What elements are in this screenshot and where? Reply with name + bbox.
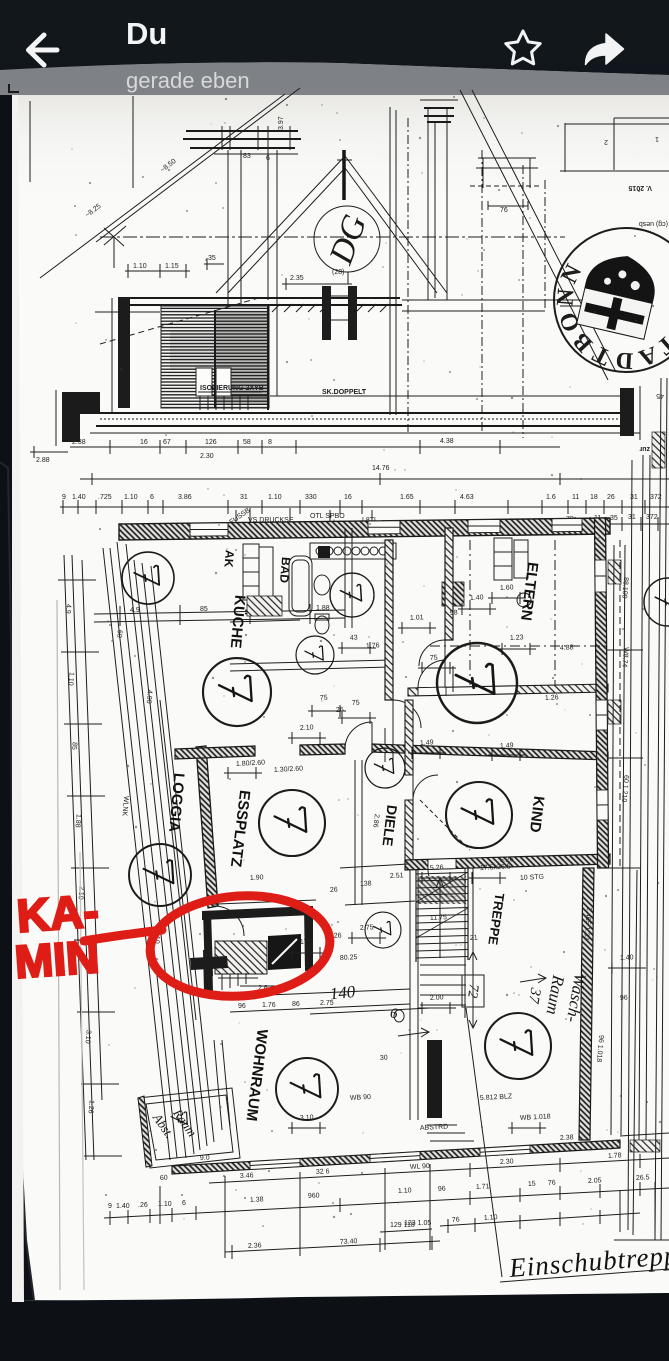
svg-text:2.88: 2.88 xyxy=(36,457,50,464)
svg-text:80.25: 80.25 xyxy=(340,954,358,962)
svg-text:43: 43 xyxy=(350,635,358,642)
svg-text:18: 18 xyxy=(590,494,598,501)
svg-text:96: 96 xyxy=(438,1186,446,1193)
svg-text:1.78: 1.78 xyxy=(608,1152,622,1160)
svg-text:1.71: 1.71 xyxy=(476,1183,490,1191)
svg-text:9: 9 xyxy=(108,1203,112,1210)
svg-text:4.63: 4.63 xyxy=(460,494,474,501)
svg-text:45: 45 xyxy=(656,392,664,399)
svg-text:31: 31 xyxy=(240,494,248,501)
svg-text:76: 76 xyxy=(548,1180,556,1187)
svg-text:2.30: 2.30 xyxy=(500,1158,514,1166)
svg-text:1.10: 1.10 xyxy=(67,672,75,686)
svg-text:2.38: 2.38 xyxy=(72,439,86,446)
svg-text:1.90: 1.90 xyxy=(250,874,264,882)
svg-text:2: 2 xyxy=(604,138,608,145)
svg-text:26: 26 xyxy=(607,494,615,501)
svg-text:1.10: 1.10 xyxy=(398,1187,412,1195)
svg-text:3.46: 3.46 xyxy=(240,1172,254,1180)
svg-text:2.36: 2.36 xyxy=(248,1242,262,1250)
svg-text:2.05: 2.05 xyxy=(588,1177,602,1185)
svg-text:72: 72 xyxy=(464,983,481,999)
svg-text:175: 175 xyxy=(300,938,312,946)
svg-text:1.49: 1.49 xyxy=(420,739,434,747)
svg-text:2.35: 2.35 xyxy=(290,275,304,282)
svg-text:960: 960 xyxy=(308,1192,320,1200)
svg-text:73.40: 73.40 xyxy=(340,1238,358,1246)
svg-text:(cg) uesb: (cg) uesb xyxy=(639,220,668,227)
svg-text:16: 16 xyxy=(140,439,148,446)
svg-text:96: 96 xyxy=(620,995,628,1002)
svg-text:.725: .725 xyxy=(98,494,112,501)
svg-text:3.97: 3.97 xyxy=(278,116,285,130)
svg-text:60: 60 xyxy=(160,1175,168,1182)
svg-text:10 STG: 10 STG xyxy=(520,874,544,882)
svg-text:15: 15 xyxy=(528,1181,536,1188)
svg-text:1.40: 1.40 xyxy=(620,954,634,962)
svg-text:75: 75 xyxy=(320,695,328,702)
svg-text:96: 96 xyxy=(238,1003,246,1010)
svg-text:98: 98 xyxy=(450,610,458,617)
svg-text:75: 75 xyxy=(352,700,360,707)
svg-text:V. 2015: V. 2015 xyxy=(628,184,652,191)
svg-text:1.10: 1.10 xyxy=(484,1214,498,1222)
svg-text:1.23: 1.23 xyxy=(510,634,524,642)
svg-text:2.51: 2.51 xyxy=(390,872,404,880)
svg-text:1.40: 1.40 xyxy=(116,1203,130,1210)
svg-text:AK: AK xyxy=(221,549,236,568)
svg-text:76: 76 xyxy=(452,1216,460,1224)
svg-text:2.30: 2.30 xyxy=(200,453,214,460)
svg-text:138: 138 xyxy=(360,880,372,888)
svg-text:6: 6 xyxy=(266,155,270,162)
svg-text:1.10: 1.10 xyxy=(133,263,147,270)
svg-text:WB 90: WB 90 xyxy=(350,1094,371,1102)
svg-text:60: 60 xyxy=(115,630,123,638)
svg-text:OTL SPBO: OTL SPBO xyxy=(310,513,345,520)
svg-text:gerade eben: gerade eben xyxy=(126,68,250,93)
svg-text:SK.DOPPELT: SK.DOPPELT xyxy=(322,389,367,396)
svg-text:35: 35 xyxy=(610,515,618,522)
svg-text:1.40: 1.40 xyxy=(72,494,86,501)
svg-text:75: 75 xyxy=(430,655,438,662)
svg-text:.26: .26 xyxy=(138,1202,148,1209)
svg-text:6: 6 xyxy=(182,1200,186,1207)
svg-text:4.90: 4.90 xyxy=(145,690,153,704)
svg-text:4.38: 4.38 xyxy=(440,438,454,445)
svg-text:9.0: 9.0 xyxy=(200,1154,210,1162)
svg-text:126: 126 xyxy=(205,439,217,446)
svg-text:1.10: 1.10 xyxy=(124,494,138,501)
svg-text:BAD: BAD xyxy=(277,556,293,583)
svg-text:2.10: 2.10 xyxy=(300,724,314,732)
svg-text:ABSTRD: ABSTRD xyxy=(420,1124,449,1132)
svg-text:372: 372 xyxy=(646,514,658,521)
svg-text:123 1.05: 123 1.05 xyxy=(404,1220,431,1227)
svg-text:ISOLIERUNG 2XYB: ISOLIERUNG 2XYB xyxy=(200,385,264,392)
svg-text:11: 11 xyxy=(572,494,579,501)
svg-text:1.88: 1.88 xyxy=(316,605,330,612)
svg-text:1.40: 1.40 xyxy=(470,594,484,602)
svg-text:76: 76 xyxy=(500,207,508,214)
svg-text:86: 86 xyxy=(292,1001,300,1008)
svg-text:26: 26 xyxy=(330,887,338,894)
svg-text:2.75: 2.75 xyxy=(320,1000,334,1007)
svg-text:31: 31 xyxy=(630,494,638,501)
svg-text:3.10: 3.10 xyxy=(84,1030,92,1044)
svg-text:1.26: 1.26 xyxy=(87,1100,95,1114)
svg-text:1.60: 1.60 xyxy=(500,584,514,592)
svg-text:1.76: 1.76 xyxy=(262,1002,276,1009)
svg-text:2.38: 2.38 xyxy=(560,1134,574,1142)
svg-text:4.88: 4.88 xyxy=(560,644,574,652)
svg-text:(28): (28) xyxy=(332,269,344,276)
svg-text:1.88: 1.88 xyxy=(74,814,82,828)
svg-text:8: 8 xyxy=(268,439,272,446)
svg-text:67: 67 xyxy=(163,439,171,446)
svg-text:WL 90: WL 90 xyxy=(410,1163,430,1171)
svg-text:30: 30 xyxy=(380,1055,388,1062)
svg-text:14.76: 14.76 xyxy=(372,465,390,472)
svg-text:Du: Du xyxy=(126,16,167,51)
svg-text:4.9: 4.9 xyxy=(64,604,72,614)
svg-text:zur: zur xyxy=(639,445,650,452)
svg-text:35: 35 xyxy=(208,255,216,262)
svg-text:1.26: 1.26 xyxy=(545,694,559,702)
svg-text:6: 6 xyxy=(150,494,154,501)
svg-text:1: 1 xyxy=(655,135,659,142)
svg-text:1.49: 1.49 xyxy=(500,742,514,750)
svg-text:2.00: 2.00 xyxy=(430,994,444,1002)
svg-text:1.38: 1.38 xyxy=(250,1196,264,1204)
svg-text:26.5: 26.5 xyxy=(636,1174,650,1182)
svg-text:16: 16 xyxy=(344,494,352,501)
svg-text:1.01: 1.01 xyxy=(410,614,424,622)
svg-text:85: 85 xyxy=(70,742,78,750)
svg-text:11.75: 11.75 xyxy=(430,914,447,922)
svg-text:1.76: 1.76 xyxy=(366,642,380,650)
svg-text:330: 330 xyxy=(305,494,317,501)
svg-text:58: 58 xyxy=(243,439,251,446)
svg-text:4.9: 4.9 xyxy=(130,607,140,614)
svg-text:2.75: 2.75 xyxy=(360,924,374,932)
svg-text:1.6: 1.6 xyxy=(546,494,556,501)
svg-text:1.15: 1.15 xyxy=(165,263,179,270)
svg-text:9: 9 xyxy=(62,494,66,501)
svg-text:1.10: 1.10 xyxy=(268,494,282,501)
svg-text:3.86: 3.86 xyxy=(178,494,192,501)
svg-text:5.26: 5.26 xyxy=(430,864,444,872)
svg-text:32 6: 32 6 xyxy=(316,1168,330,1176)
svg-text:21: 21 xyxy=(470,935,478,942)
svg-text:85: 85 xyxy=(200,606,208,613)
svg-text:1.65: 1.65 xyxy=(400,494,414,501)
